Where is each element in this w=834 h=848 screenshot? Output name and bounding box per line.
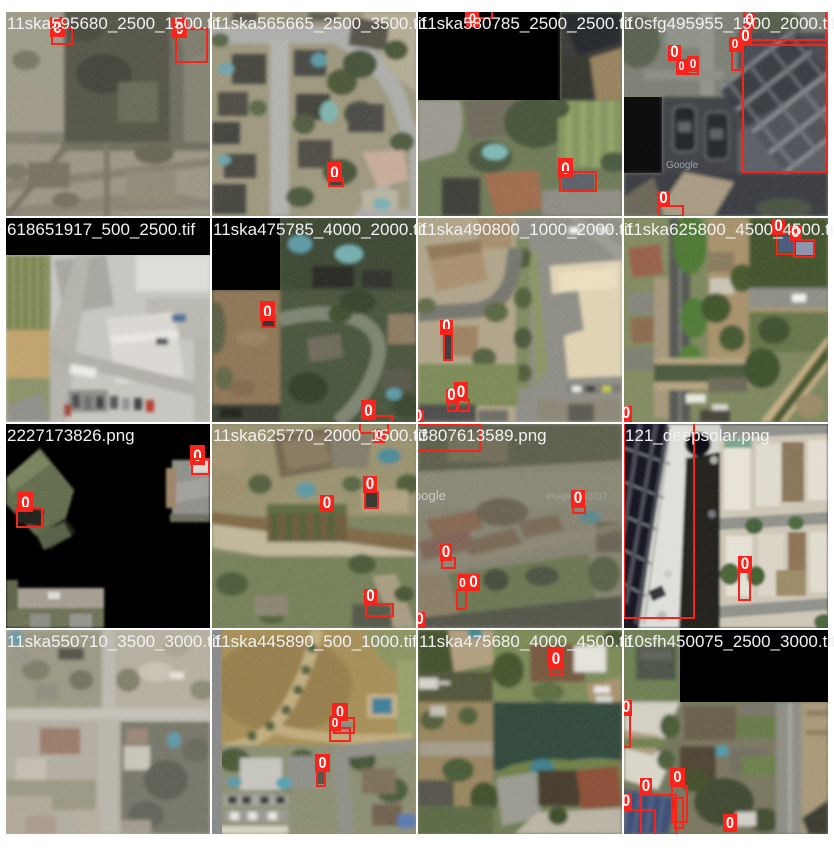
svg-text:0: 0 [418, 609, 424, 628]
svg-text:0: 0 [418, 406, 422, 422]
svg-text:0: 0 [624, 697, 630, 716]
svg-text:0: 0 [459, 575, 466, 590]
svg-text:0: 0 [659, 188, 668, 207]
svg-text:0: 0 [674, 769, 682, 786]
svg-text:0: 0 [679, 59, 685, 73]
svg-text:0: 0 [741, 554, 750, 573]
svg-text:0: 0 [726, 815, 734, 832]
svg-text:0: 0 [323, 493, 332, 512]
svg-text:0: 0 [263, 302, 272, 321]
svg-text:0: 0 [366, 474, 375, 493]
svg-text:0: 0 [574, 488, 583, 507]
svg-text:0: 0 [690, 56, 697, 71]
svg-text:0: 0 [624, 403, 630, 422]
svg-text:0: 0 [193, 446, 202, 465]
svg-text:0: 0 [670, 42, 679, 61]
svg-text:0: 0 [732, 36, 739, 51]
svg-text:0: 0 [21, 493, 30, 512]
svg-text:0: 0 [366, 586, 375, 605]
svg-text:0: 0 [552, 649, 561, 668]
svg-text:0: 0 [469, 572, 478, 591]
svg-text:0: 0 [561, 159, 570, 178]
svg-text:0: 0 [330, 163, 339, 182]
svg-text:0: 0 [642, 776, 651, 795]
svg-text:0: 0 [364, 401, 373, 420]
svg-text:0: 0 [624, 791, 630, 810]
svg-text:0: 0 [457, 382, 466, 401]
